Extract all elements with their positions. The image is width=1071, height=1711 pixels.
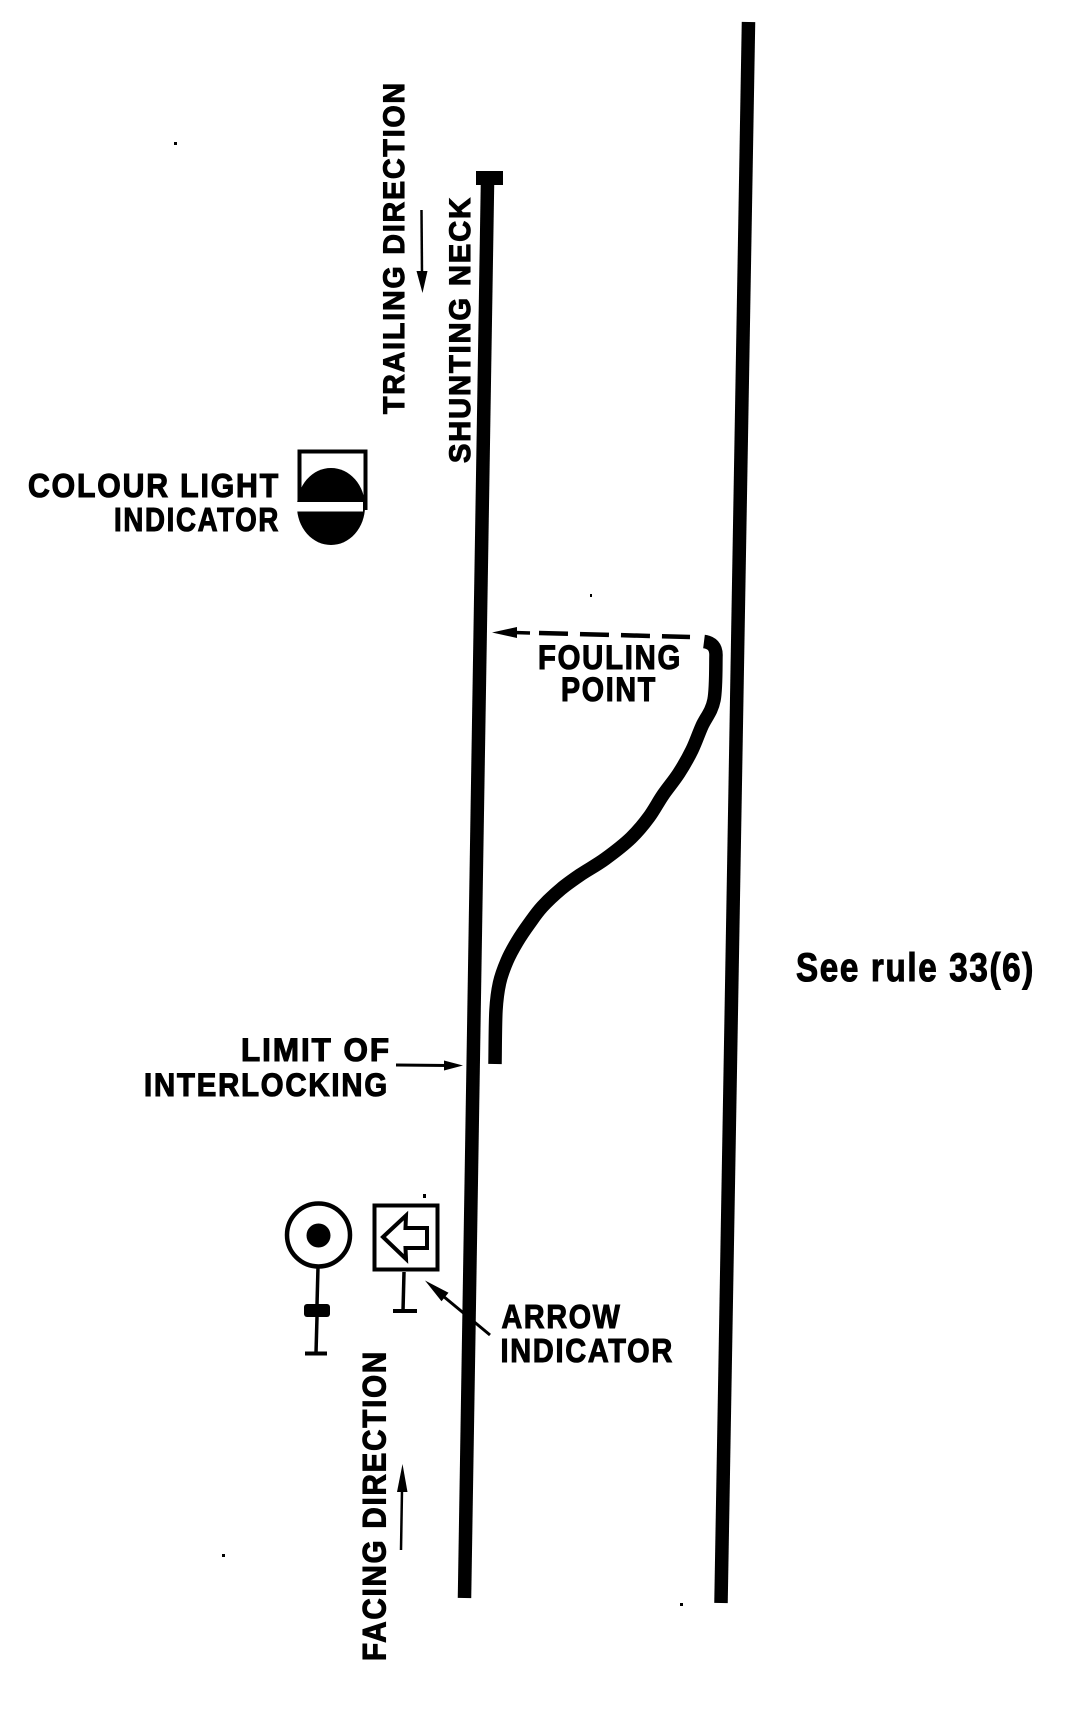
svg-text:ARROW: ARROW bbox=[502, 1299, 622, 1336]
svg-text:SHUNTING NECK: SHUNTING NECK bbox=[444, 196, 477, 463]
svg-text:See rule 33(6): See rule 33(6) bbox=[796, 946, 1035, 990]
svg-text:INDICATOR: INDICATOR bbox=[501, 1333, 675, 1370]
svg-text:TRAILING DIRECTION: TRAILING DIRECTION bbox=[378, 81, 411, 414]
svg-text:POINT: POINT bbox=[561, 671, 657, 709]
svg-text:INTERLOCKING: INTERLOCKING bbox=[144, 1067, 389, 1103]
svg-text:INDICATOR: INDICATOR bbox=[114, 501, 280, 538]
svg-text:FACING DIRECTION: FACING DIRECTION bbox=[357, 1350, 393, 1661]
svg-text:LIMIT OF: LIMIT OF bbox=[241, 1032, 391, 1068]
svg-text:COLOUR LIGHT: COLOUR LIGHT bbox=[28, 467, 280, 504]
